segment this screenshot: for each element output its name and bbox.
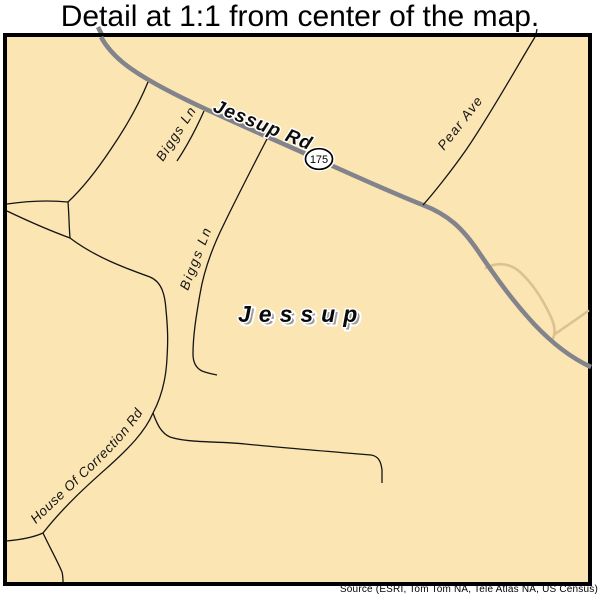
route-shield-number: 175 [310, 154, 328, 166]
source-attribution: Source (ESRI, Tom Tom NA, Tele Atlas NA,… [340, 584, 598, 595]
map-canvas: 175 Jessup Rd Pear Ave Biggs Ln Biggs Ln… [0, 0, 600, 600]
city-label: Jessup [238, 301, 365, 327]
city-label-group: Jessup Jessup [238, 301, 368, 330]
